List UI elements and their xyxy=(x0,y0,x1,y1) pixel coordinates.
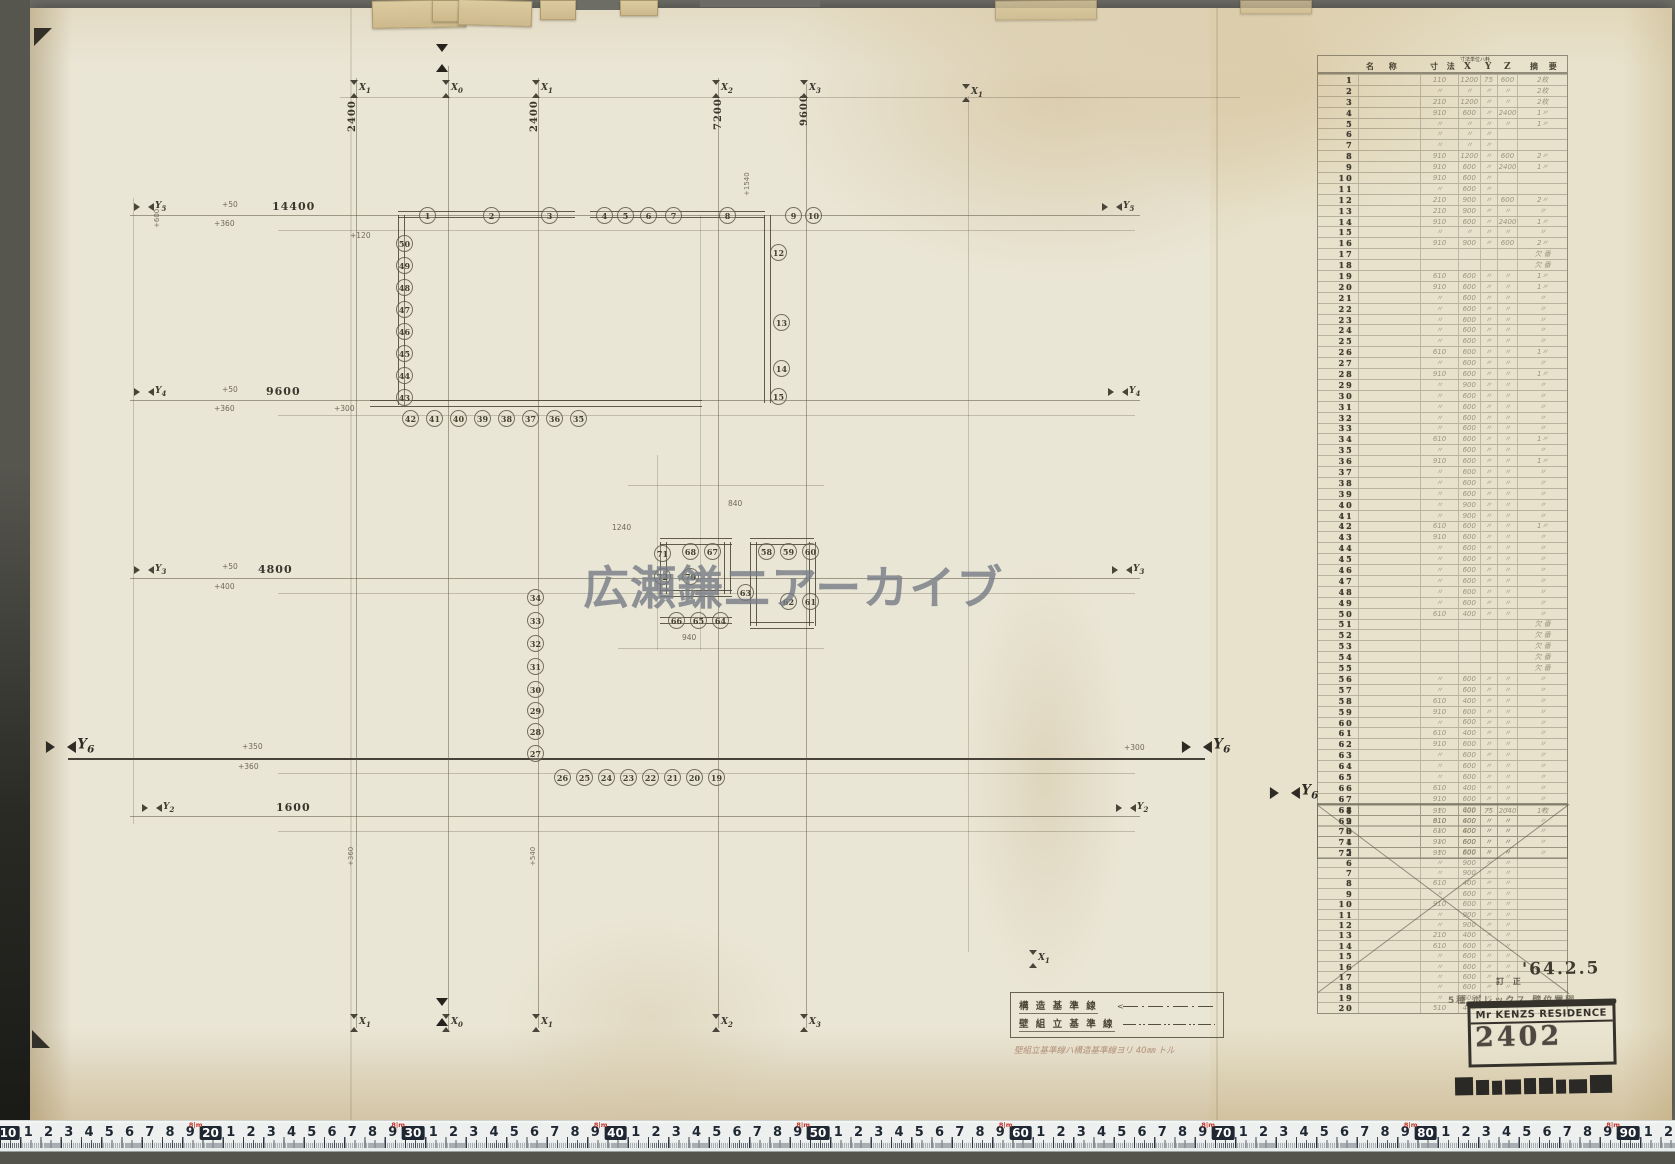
table-cell: 〃 xyxy=(1517,587,1567,597)
table-cell: 910 xyxy=(1420,707,1458,717)
ruler-meter-label: 8|m xyxy=(999,1121,1013,1129)
table-cell: 〃 xyxy=(1480,347,1497,357)
table-cell: 〃 xyxy=(1480,424,1497,434)
table-cell: 〃 xyxy=(1517,315,1567,325)
table-cell: 〃 xyxy=(1480,511,1497,521)
ruler-digit: 6 xyxy=(125,1125,134,1140)
table-cell: 〃 xyxy=(1480,962,1497,971)
table-row: 13210900〃〃〃 xyxy=(1318,205,1567,216)
table-cell xyxy=(1358,184,1420,194)
axis-label: X1 xyxy=(359,83,371,95)
wall-segment xyxy=(660,538,732,545)
legend-row: 壁 組 立 基 準 線 xyxy=(1019,1015,1215,1033)
table-cell: 600 xyxy=(1458,816,1480,825)
row-number: 25 xyxy=(1318,336,1358,346)
table-row: 59910600〃〃〃 xyxy=(1318,706,1567,717)
table-cell: 〃 xyxy=(1497,206,1518,216)
ruler-digit: 7 xyxy=(955,1125,964,1140)
table-cell: 〃 xyxy=(1497,511,1518,521)
masking-tape xyxy=(540,0,576,20)
circled-panel-number: 9 xyxy=(785,207,802,224)
row-number: 31 xyxy=(1318,402,1358,412)
ruler-digit: 7 xyxy=(1360,1125,1369,1140)
axis-arrow-icon xyxy=(46,741,76,753)
dimension-label: +350 xyxy=(242,742,263,751)
table-row: 15〃〃〃〃〃 xyxy=(1318,226,1567,237)
table-cell: 600 xyxy=(1458,772,1480,782)
table-cell: 〃 xyxy=(1517,576,1567,586)
table-cell: 910 xyxy=(1420,173,1458,183)
table-row: 8610400〃〃 xyxy=(1318,878,1567,888)
table-cell: 〃 xyxy=(1517,761,1567,771)
axis-label: Y4 xyxy=(1129,386,1140,398)
table-cell: 〃 xyxy=(1480,456,1497,466)
table-cell: 〃 xyxy=(1497,282,1518,292)
table-cell: 600 xyxy=(1458,325,1480,335)
table-cell: 〃 xyxy=(1497,347,1518,357)
table-cell: 〃 xyxy=(1497,293,1518,303)
axis-arrow-icon xyxy=(532,1014,540,1032)
table-cell: 〃 xyxy=(1420,750,1458,760)
table-cell xyxy=(1497,249,1518,259)
table-cell: 〃 xyxy=(1480,108,1497,118)
ruler-digit: 4 xyxy=(84,1125,93,1140)
axis-arrow-icon xyxy=(712,80,720,98)
table-cell: 600 xyxy=(1458,962,1480,971)
table-cell xyxy=(1358,293,1420,303)
row-number: 64 xyxy=(1318,761,1358,771)
ruler-digit: 2 xyxy=(854,1125,863,1140)
row-number: 19 xyxy=(1318,271,1358,281)
table-cell xyxy=(1517,129,1567,139)
table-cell: 〃 xyxy=(1480,783,1497,793)
table-cell: 〃 xyxy=(1458,129,1480,139)
table-row: 47〃600〃〃〃 xyxy=(1318,575,1567,586)
table-row: 24〃600〃〃〃 xyxy=(1318,324,1567,335)
table-cell: 600 xyxy=(1458,972,1480,981)
table-cell xyxy=(1358,151,1420,161)
circled-panel-number: 42 xyxy=(402,410,419,427)
table-cell: 〃 xyxy=(1480,489,1497,499)
ruler-digit: 3 xyxy=(64,1125,73,1140)
dimension-label: 1600 xyxy=(276,801,311,814)
table-cell: 1〃 xyxy=(1517,217,1567,227)
table-cell: 〃 xyxy=(1420,598,1458,608)
row-number: 10 xyxy=(1318,173,1358,183)
ink-mark xyxy=(1524,1078,1536,1094)
table-cell xyxy=(1358,630,1420,640)
table-cell: 〃 xyxy=(1480,576,1497,586)
axis-marker: Y2 xyxy=(1116,802,1148,814)
table-cell: 〃 xyxy=(1497,467,1518,477)
circled-panel-number: 22 xyxy=(642,769,659,786)
table-cell: 600 xyxy=(1458,391,1480,401)
table-cell: 〃 xyxy=(1497,227,1518,237)
table-row: 2〃〃〃〃2枚 xyxy=(1318,85,1567,96)
table-cell xyxy=(1480,652,1497,662)
dimension-label: 2400 xyxy=(529,100,540,132)
table-cell xyxy=(1480,630,1497,640)
circled-panel-number: 34 xyxy=(527,589,544,606)
row-number: 34 xyxy=(1318,434,1358,444)
axis-marker: Y6 xyxy=(1182,738,1230,756)
axis-label: X3 xyxy=(809,1017,821,1029)
table-cell: 900 xyxy=(1458,380,1480,390)
axis-arrow-icon xyxy=(1270,787,1300,799)
table-cell xyxy=(1358,674,1420,684)
table-cell xyxy=(1358,162,1420,172)
circled-panel-number: 38 xyxy=(498,410,515,427)
table-row: 14910600〃24001〃 xyxy=(1318,216,1567,227)
circled-panel-number: 45 xyxy=(396,345,413,362)
table-cell: 75 xyxy=(1480,806,1497,815)
axis-arrow-icon xyxy=(1116,804,1136,812)
dimension-label: 9600 xyxy=(799,94,810,126)
dimension-label: +120 xyxy=(350,231,371,240)
dimension-label: +400 xyxy=(214,582,235,591)
circled-panel-number: 40 xyxy=(450,410,467,427)
table-cell: 610 xyxy=(1420,941,1458,950)
table-cell: 欠 番 xyxy=(1517,260,1567,270)
table-cell xyxy=(1458,260,1480,270)
table-cell: 〃 xyxy=(1420,304,1458,314)
table-row: 55欠 番 xyxy=(1318,662,1567,673)
table-row: 20910600〃〃1〃 xyxy=(1318,281,1567,292)
table-cell: 1200 xyxy=(1458,75,1480,85)
table-cell: 600 xyxy=(1497,195,1518,205)
table-cell xyxy=(1358,565,1420,575)
row-number: 21 xyxy=(1318,293,1358,303)
axis-label: X1 xyxy=(359,1017,371,1029)
table-cell: 〃 xyxy=(1420,868,1458,877)
table-cell: 〃 xyxy=(1480,206,1497,216)
table-row: 32〃600〃〃〃 xyxy=(1318,412,1567,423)
circled-panel-number: 37 xyxy=(522,410,539,427)
table-cell: 600 xyxy=(1458,889,1480,898)
table-cell xyxy=(1358,554,1420,564)
table-cell xyxy=(1358,217,1420,227)
row-number: 48 xyxy=(1318,587,1358,597)
ink-stamp-marks xyxy=(1455,1071,1623,1096)
axis-label: Y2 xyxy=(163,802,174,814)
table-cell: 〃 xyxy=(1420,293,1458,303)
table-row: 23〃600〃〃〃 xyxy=(1318,314,1567,325)
corner-mark xyxy=(32,1030,50,1048)
table-cell: 600 xyxy=(1458,761,1480,771)
table-cell: 2〃 xyxy=(1517,151,1567,161)
parts-table-header: 名 称 寸 法 寸法単位ハ粍 X Y Z 摘 要 xyxy=(1317,55,1568,73)
table-cell xyxy=(1497,173,1518,183)
dimension-label: +360 xyxy=(238,762,259,771)
table-cell xyxy=(1358,816,1420,825)
corner-mark xyxy=(34,28,52,46)
table-cell: 〃 xyxy=(1517,293,1567,303)
ruler-digit: 5 xyxy=(510,1125,519,1140)
table-cell: 〃 xyxy=(1480,598,1497,608)
table-cell: 〃 xyxy=(1517,413,1567,423)
paper-crease xyxy=(350,8,352,1122)
legend-row: 構 造 基 準 線 < xyxy=(1019,997,1215,1015)
ruler-digit: 4 xyxy=(894,1125,903,1140)
table-cell xyxy=(1358,413,1420,423)
parts-table-lower: 19104007520401枚2910600〃〃3〃600〃〃4〃600〃〃5〃… xyxy=(1317,803,1568,1014)
ruler-digit: 1 xyxy=(429,1125,438,1140)
ink-mark xyxy=(1556,1080,1566,1094)
table-row: 11〃600〃 xyxy=(1318,183,1567,194)
ruler-digit: 5 xyxy=(307,1125,316,1140)
table-cell: 900 xyxy=(1458,500,1480,510)
table-cell xyxy=(1480,260,1497,270)
table-cell: 75 xyxy=(1480,75,1497,85)
ruler-digit: 6 xyxy=(1542,1125,1551,1140)
ruler-digit: 8 xyxy=(1583,1125,1592,1140)
table-cell: 〃 xyxy=(1480,772,1497,782)
row-number: 9 xyxy=(1318,889,1358,898)
table-cell: 〃 xyxy=(1497,271,1518,281)
table-cell xyxy=(1420,249,1458,259)
row-number: 6 xyxy=(1318,129,1358,139)
table-cell xyxy=(1517,889,1567,898)
circled-panel-number: 6 xyxy=(640,207,657,224)
axis-arrow-icon xyxy=(712,1014,720,1032)
table-cell: 〃 xyxy=(1420,848,1458,857)
axis-label: Y3 xyxy=(155,564,166,576)
parts-table-upper: 11101200756002枚2〃〃〃〃2枚32101200〃〃2枚491060… xyxy=(1317,73,1568,859)
dimension-label: +1540 xyxy=(743,172,751,196)
row-number: 62 xyxy=(1318,739,1358,749)
dimension-label: +50 xyxy=(222,562,238,571)
table-cell: 1〃 xyxy=(1517,456,1567,466)
ruler-digit: 2 xyxy=(246,1125,255,1140)
ruler-digit: 5 xyxy=(1117,1125,1126,1140)
row-number: 15 xyxy=(1318,951,1358,960)
table-cell xyxy=(1358,369,1420,379)
circled-panel-number: 4 xyxy=(596,207,613,224)
axis-marker: Y4 xyxy=(134,386,166,398)
ruler-digit: 8 xyxy=(368,1125,377,1140)
table-cell: 〃 xyxy=(1517,750,1567,760)
row-number: 2 xyxy=(1318,86,1358,96)
circled-panel-number: 19 xyxy=(708,769,725,786)
table-cell: 600 xyxy=(1458,162,1480,172)
table-cell: 600 xyxy=(1497,238,1518,248)
table-cell: 〃 xyxy=(1480,728,1497,738)
table-cell: 〃 xyxy=(1420,478,1458,488)
table-row: 51欠 番 xyxy=(1318,619,1567,630)
table-cell: 〃 xyxy=(1497,304,1518,314)
table-cell xyxy=(1358,750,1420,760)
torn-edge-notch xyxy=(700,0,820,7)
table-row: 33〃600〃〃〃 xyxy=(1318,423,1567,434)
grid-line xyxy=(68,758,1205,760)
table-cell: 2400 xyxy=(1497,217,1518,227)
table-cell: 〃 xyxy=(1480,889,1497,898)
table-row: 18〃600〃〃 xyxy=(1318,982,1567,992)
axis-marker: X1 xyxy=(962,84,983,102)
row-number: 56 xyxy=(1318,674,1358,684)
dimension-label: 4800 xyxy=(258,563,293,576)
table-cell: 910 xyxy=(1420,108,1458,118)
table-cell: 〃 xyxy=(1517,402,1567,412)
table-cell: 〃 xyxy=(1420,489,1458,499)
row-number: 65 xyxy=(1318,772,1358,782)
axis-marker: X3 xyxy=(800,80,821,98)
table-cell: 〃 xyxy=(1497,707,1518,717)
table-cell: 〃 xyxy=(1420,227,1458,237)
table-cell: 600 xyxy=(1458,951,1480,960)
table-cell: 〃 xyxy=(1497,380,1518,390)
row-number: 58 xyxy=(1318,696,1358,706)
table-cell: 欠 番 xyxy=(1517,641,1567,651)
axis-label: Y6 xyxy=(1301,784,1318,802)
table-cell: 〃 xyxy=(1517,467,1567,477)
table-cell xyxy=(1497,641,1518,651)
table-cell: 〃 xyxy=(1480,434,1497,444)
table-cell: 600 xyxy=(1458,848,1480,857)
table-cell: 〃 xyxy=(1517,336,1567,346)
table-cell xyxy=(1517,920,1567,929)
table-cell: 600 xyxy=(1458,941,1480,950)
row-number: 6 xyxy=(1318,858,1358,867)
header-name: 名 称 xyxy=(1366,61,1403,72)
legend-label-structure-line: 構 造 基 準 線 xyxy=(1019,998,1098,1014)
table-cell: 〃 xyxy=(1480,761,1497,771)
table-cell: 〃 xyxy=(1480,238,1497,248)
dimension-label: 1240 xyxy=(612,523,631,532)
grid-line xyxy=(538,78,539,1028)
table-cell: 110 xyxy=(1420,75,1458,85)
table-cell xyxy=(1517,910,1567,919)
table-cell: 900 xyxy=(1458,238,1480,248)
table-cell: 〃 xyxy=(1420,129,1458,139)
table-cell: 〃 xyxy=(1497,816,1518,825)
table-cell xyxy=(1358,424,1420,434)
table-cell xyxy=(1497,630,1518,640)
table-cell: 〃 xyxy=(1497,772,1518,782)
axis-marker: Y5 xyxy=(1102,201,1134,213)
table-cell xyxy=(1480,249,1497,259)
table-cell: 〃 xyxy=(1420,119,1458,129)
table-cell: 600 xyxy=(1458,598,1480,608)
circled-panel-number: 15 xyxy=(770,388,787,405)
ruler-digit: 4 xyxy=(1502,1125,1511,1140)
table-cell: 610 xyxy=(1420,728,1458,738)
circled-panel-number: 31 xyxy=(527,658,544,675)
table-cell: 〃 xyxy=(1480,217,1497,227)
table-cell: 600 xyxy=(1458,336,1480,346)
row-number: 36 xyxy=(1318,456,1358,466)
header-size: 寸 法 xyxy=(1430,61,1458,72)
table-cell: 〃 xyxy=(1480,325,1497,335)
table-row: 60〃600〃〃〃 xyxy=(1318,717,1567,728)
table-cell: 2400 xyxy=(1497,162,1518,172)
table-cell: 600 xyxy=(1458,478,1480,488)
table-cell: 〃 xyxy=(1497,522,1518,532)
ink-mark xyxy=(1505,1079,1521,1094)
table-cell: 〃 xyxy=(1497,685,1518,695)
table-cell: 600 xyxy=(1458,271,1480,281)
table-cell: 600 xyxy=(1458,467,1480,477)
table-cell xyxy=(1358,173,1420,183)
row-number: 20 xyxy=(1318,282,1358,292)
table-cell xyxy=(1358,282,1420,292)
table-cell: 610 xyxy=(1420,347,1458,357)
table-cell xyxy=(1358,86,1420,96)
row-number: 22 xyxy=(1318,304,1358,314)
table-cell: 400 xyxy=(1458,783,1480,793)
paper-crease xyxy=(1216,8,1218,1122)
ruler-digit: 2 xyxy=(1056,1125,1065,1140)
table-cell: 〃 xyxy=(1497,489,1518,499)
axis-marker: Y3 xyxy=(134,564,166,576)
table-cell xyxy=(1358,249,1420,259)
dimension-label: +50 xyxy=(222,200,238,209)
dash-dot-line-sample: < xyxy=(1123,1005,1215,1008)
table-row: 21〃600〃〃〃 xyxy=(1318,292,1567,303)
ruler-digit: 2 xyxy=(449,1125,458,1140)
ruler-digit: 1 xyxy=(24,1125,33,1140)
table-cell: 〃 xyxy=(1497,696,1518,706)
table-cell xyxy=(1358,206,1420,216)
table-cell: 〃 xyxy=(1480,696,1497,706)
header-y: Y xyxy=(1485,62,1491,72)
table-cell xyxy=(1358,119,1420,129)
table-cell: 〃 xyxy=(1480,129,1497,139)
table-cell: 600 xyxy=(1458,827,1480,836)
axis-arrow-icon xyxy=(134,566,154,574)
axis-marker: X1 xyxy=(1029,950,1050,968)
table-cell xyxy=(1517,941,1567,950)
table-cell xyxy=(1358,652,1420,662)
table-cell: 600 xyxy=(1458,739,1480,749)
table-cell: 〃 xyxy=(1517,609,1567,619)
table-cell: 〃 xyxy=(1497,391,1518,401)
table-row: 16910900〃6002〃 xyxy=(1318,237,1567,248)
row-number: 13 xyxy=(1318,206,1358,216)
ruler-digit: 3 xyxy=(874,1125,883,1140)
table-cell: 910 xyxy=(1420,456,1458,466)
masking-tape xyxy=(458,0,533,27)
table-cell xyxy=(1517,837,1567,846)
table-cell: 〃 xyxy=(1497,750,1518,760)
table-cell: 600 xyxy=(1458,532,1480,542)
table-row: 13210400〃〃 xyxy=(1318,930,1567,940)
table-cell xyxy=(1358,983,1420,992)
row-number: 23 xyxy=(1318,315,1358,325)
circled-panel-number: 3 xyxy=(541,207,558,224)
table-row: 5〃600〃〃 xyxy=(1318,847,1567,857)
ruler-digit: 1 xyxy=(1441,1125,1450,1140)
ruler-digit: 3 xyxy=(1077,1125,1086,1140)
table-cell xyxy=(1358,993,1420,1002)
ruler-digit: 6 xyxy=(1340,1125,1349,1140)
circled-panel-number: 21 xyxy=(664,769,681,786)
table-cell: 〃 xyxy=(1420,772,1458,782)
table-cell xyxy=(1358,75,1420,85)
axis-arrow-icon xyxy=(1108,388,1128,396)
table-cell: 〃 xyxy=(1480,750,1497,760)
table-cell xyxy=(1480,663,1497,673)
table-cell: 〃 xyxy=(1497,86,1518,96)
ink-mark xyxy=(1476,1080,1489,1095)
table-cell: 〃 xyxy=(1497,402,1518,412)
table-cell: 600 xyxy=(1458,837,1480,846)
ruler-digit: 6 xyxy=(327,1125,336,1140)
table-cell: 〃 xyxy=(1497,500,1518,510)
table-cell: 600 xyxy=(1458,554,1480,564)
row-number: 14 xyxy=(1318,217,1358,227)
axis-arrow-icon xyxy=(134,388,154,396)
